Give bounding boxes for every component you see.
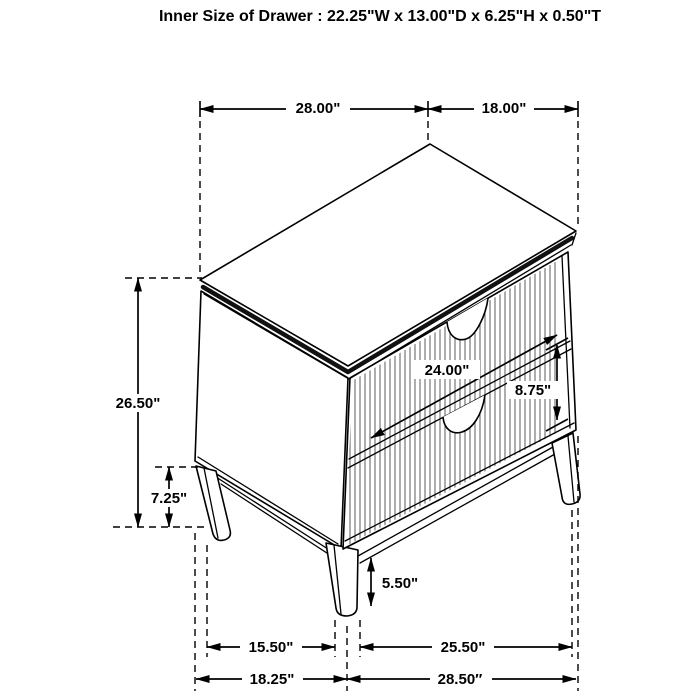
dim-label-base-width-outer: 18.25" [250, 671, 295, 688]
dim-label-base-depth-outer: 28.50″ [438, 671, 483, 688]
dim-label-drawer-front-height: 8.75" [515, 382, 551, 399]
dim-label-base-width-inner: 15.50" [249, 639, 294, 656]
front-leg [326, 543, 358, 616]
nightstand-drawing [195, 144, 580, 616]
dim-label-top-depth: 18.00" [482, 100, 527, 117]
dim-label-overall-height: 26.50" [116, 395, 161, 412]
diagram-page: Inner Size of Drawer : 22.25"W x 13.00"D… [0, 0, 700, 700]
dim-label-top-width: 28.00" [296, 100, 341, 117]
dim-label-front-leg-height: 5.50" [382, 575, 418, 592]
nightstand-dimension-diagram: 28.00" 18.00" 26.50" 7.25" 24.00" 8.75" … [0, 0, 700, 700]
dim-label-side-leg-height: 7.25" [151, 490, 187, 507]
dim-label-drawer-width: 24.00" [425, 362, 470, 379]
dim-label-base-depth-inner: 25.50" [441, 639, 486, 656]
right-leg [552, 433, 580, 504]
